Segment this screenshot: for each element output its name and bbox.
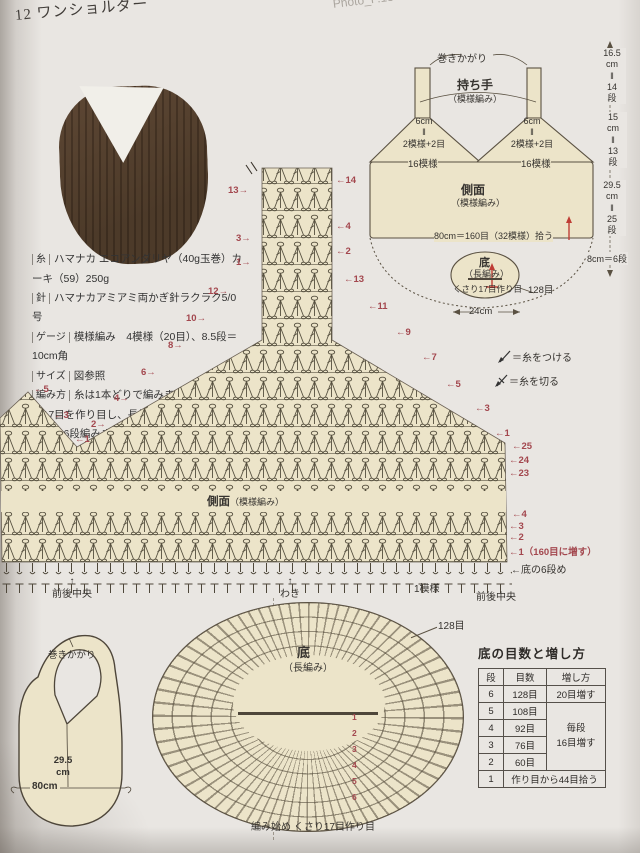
cell-stitches: 108目 (504, 703, 547, 720)
cell-stitches: 60目 (504, 754, 547, 771)
one-pattern-label: 1模様 (414, 580, 440, 595)
measure-16-5cm: 16.5 cm ‖ 14 段 (598, 48, 626, 104)
row-num: ←23 (509, 468, 529, 479)
base-6th-row-note: ←底の6段め (511, 561, 567, 576)
chart-side-label: 側面（模様編み） (207, 492, 284, 510)
main-stitch-chart (0, 160, 545, 630)
row-num: 10→ (186, 313, 206, 324)
row-num: ←3 (475, 403, 490, 414)
center-front-back-left: ↑ 前後中央 (52, 576, 92, 601)
scanned-book-page: 12 ワンショルダー Photo_P.13 糸ハマナカ エコアンダリヤ（40g玉… (0, 0, 640, 853)
bag-width-label: 80cm (30, 781, 60, 792)
row-num: 8→ (168, 340, 183, 351)
row-num: ←14 (336, 175, 356, 186)
row-num: 12→ (208, 286, 228, 297)
row-num: ←7 (422, 352, 437, 363)
row-num: ←2 (336, 246, 351, 257)
base-row-digit: 6 (352, 792, 357, 802)
chart-side-main: 側面 (207, 496, 230, 508)
row-num: 13→ (228, 185, 248, 196)
stitch-count-table: 段 目数 増し方 6 128目 20目増す 5 108目 毎段 16目増す 4 … (478, 668, 606, 788)
row-num: ←3 (509, 521, 524, 532)
cell-row: 2 (479, 754, 504, 771)
row-num: ←9 (396, 327, 411, 338)
table-title: 底の目数と増し方 (478, 643, 606, 662)
base-stitch-table: 底の目数と増し方 段 目数 増し方 6 128目 20目増す 5 108目 毎段… (478, 643, 606, 788)
handle-sub-label: （模様編み） (448, 92, 502, 105)
row-num-increase-note: ←1（160目に増す） (509, 544, 597, 558)
base-sub-label: （長編み） (283, 659, 333, 674)
row-num: ←3 (54, 410, 69, 421)
row-num: ←4 (512, 509, 527, 520)
chart-side-sub: （模様編み） (230, 497, 284, 507)
photo-reference: Photo_P.13 (332, 0, 394, 11)
cell-stitches: 76目 (504, 737, 547, 754)
cell-row: 3 (479, 737, 504, 754)
cell-pickup: 作り目から44目拾う (504, 771, 606, 788)
cell-stitches: 128目 (504, 686, 547, 703)
page-title: 12 ワンショルダー (14, 0, 149, 25)
row-num: 4→ (114, 393, 129, 404)
measure-29-5cm: 29.5 cm ‖ 25 段 (598, 180, 626, 236)
row-num: ←2 (509, 532, 524, 543)
base-start-label: 編み始め くさり17目作り目 (238, 818, 388, 833)
base-foundation-chain (238, 712, 378, 715)
col-header-increase: 増し方 (547, 669, 606, 686)
side-seam-label: ↑ わき (280, 576, 300, 601)
base-row-digit: 5 (352, 776, 357, 786)
row-num: 6→ (141, 367, 156, 378)
strap-spec-right: 6cm ‖ 2模様+2目 (506, 116, 558, 150)
measure-8cm: 8cm＝6段 (586, 252, 628, 265)
row-num: ←25 (512, 441, 532, 452)
base-row-digit: 2 (352, 728, 357, 738)
cell-row: 4 (479, 720, 504, 737)
base-row-digit: 4 (352, 760, 357, 770)
center-front-back-right: 前後中央 (476, 588, 516, 603)
cell-increase: 20目増す (547, 686, 606, 703)
strap-spec-left: 6cm ‖ 2模様+2目 (398, 116, 450, 150)
row-num: ←5 (446, 379, 461, 390)
row-num: 3→ (236, 233, 251, 244)
base-row-digit: 1 (352, 712, 357, 722)
measure-15cm: 15 cm ‖ 13 段 (599, 112, 627, 168)
row-num: ←13 (344, 274, 364, 285)
row-num: ←1 (495, 428, 510, 439)
cell-stitches: 92目 (504, 720, 547, 737)
cell-row: 5 (479, 703, 504, 720)
row-num: ←5 (34, 384, 49, 395)
col-header-stitches: 目数 (504, 669, 547, 686)
row-num: ←11 (368, 301, 388, 312)
row-num: 1→ (236, 257, 251, 268)
bag-whipstitch-label: 巻きかがり (48, 647, 96, 661)
handle-label: 持ち手 (457, 76, 493, 93)
base-128-label: 128目 (438, 617, 465, 632)
bag-height-label: 29.5 cm (50, 755, 76, 779)
row-num: ←1 (75, 434, 90, 445)
whipstitch-label: 巻きかがり (437, 50, 487, 65)
row-num: ←4 (336, 221, 351, 232)
cell-increase-merged: 毎段 16目増す (547, 703, 606, 771)
col-header-row: 段 (479, 669, 504, 686)
row-num: ←24 (509, 455, 529, 466)
row-num: 2→ (91, 419, 106, 430)
base-row-digit: 3 (352, 744, 357, 754)
base-stitch-chart (152, 602, 464, 832)
cell-row: 1 (479, 771, 504, 788)
cell-row: 6 (479, 686, 504, 703)
